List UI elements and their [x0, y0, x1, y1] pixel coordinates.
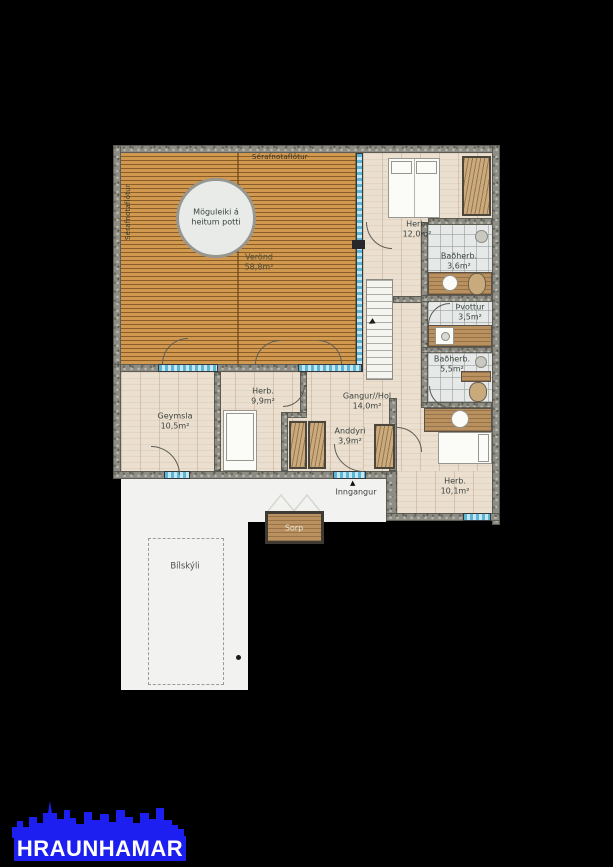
deck-glass-wall — [356, 153, 363, 372]
exclusive-use-area-label-left: Sérafnotaflötur — [124, 184, 132, 240]
room-label-bedroom101: Herb. 10,1m² — [441, 477, 470, 496]
logo-text-band: HRAUNHAMAR — [14, 836, 186, 861]
bath55-toilet — [469, 382, 487, 402]
wall-left-lower — [113, 364, 121, 479]
wall-storage-bedroom — [214, 372, 221, 471]
logo-text: HRAUNHAMAR — [17, 836, 183, 862]
bed-split-line — [414, 159, 415, 217]
room-label-laundry: Þvottur 3,5m² — [455, 303, 484, 322]
slider-handle — [352, 240, 365, 249]
bath36-fixture — [475, 230, 488, 243]
hot-tub-label: Möguleiki á heitum potti — [191, 208, 240, 227]
entrance-arrow-icon: ▲ — [350, 479, 355, 487]
room-label-storage: Geymsla 10,5m² — [158, 412, 193, 431]
exclusive-use-area-label-top: Sérafnotaflötur — [252, 153, 308, 161]
entry-closet — [308, 421, 326, 469]
deck-label: Verönd 58,8m² — [245, 253, 274, 272]
carport-dot — [236, 655, 241, 660]
wall-right — [492, 145, 500, 525]
deck-window-2 — [298, 364, 362, 372]
entry-closet — [289, 421, 307, 469]
bed-pillow — [416, 161, 437, 174]
bedroom101-window — [463, 513, 491, 521]
room-label-bedroom99: Herb. 9,9m² — [251, 387, 275, 406]
carport-dashed-outline — [148, 538, 224, 685]
entry-closet — [374, 424, 395, 469]
wardrobe-bedroom12 — [462, 156, 491, 216]
wall-anddyri-left — [281, 412, 288, 471]
wall-bath36-laundry — [421, 295, 492, 302]
entry-door-glass — [333, 471, 366, 479]
wall-left-deck — [113, 145, 121, 372]
room-label-vestibule: Anddyri 3,9m² — [335, 427, 366, 446]
staircase — [366, 279, 393, 380]
wall-bath-left — [421, 222, 428, 408]
bath36-sink — [442, 275, 458, 291]
washer-door — [441, 332, 450, 341]
bath55-fixture — [475, 356, 487, 368]
single-bed-mattress — [226, 413, 254, 461]
deck-window-1 — [158, 364, 218, 372]
room-label-bath36: Baðherb. 3,6m² — [441, 252, 477, 271]
room-label-bedroom12: Herb. 12,0m² — [403, 220, 432, 239]
wall-laundry-bath55 — [421, 347, 492, 353]
bath36-toilet — [468, 273, 486, 295]
hot-tub-label-line1: Möguleiki á — [191, 208, 240, 218]
hot-tub-label-line2: heitum potti — [191, 217, 240, 227]
floor-plan-screenshot: ▲ Sérafnotaflötur Sérafnotaflötur — [0, 0, 613, 867]
bedroom101-pillow — [478, 434, 489, 462]
wall-bath36-top — [428, 218, 492, 225]
room-label-hall: Gangur//Hol 14,0m² — [343, 392, 391, 411]
entrance-label: Inngangur — [336, 487, 377, 497]
sorp-label: Sorp — [285, 523, 303, 533]
room-label-bath55: Baðherb. 5,5m² — [434, 355, 470, 374]
city-skyline-icon — [12, 798, 188, 838]
sorp-lid-lines — [266, 493, 322, 512]
wall-top — [113, 145, 500, 153]
agency-logo: HRAUNHAMAR — [10, 798, 194, 862]
bedroom101-sink — [451, 410, 469, 428]
bed-pillow — [391, 161, 412, 174]
carport-label: Bílskýli — [170, 562, 199, 572]
